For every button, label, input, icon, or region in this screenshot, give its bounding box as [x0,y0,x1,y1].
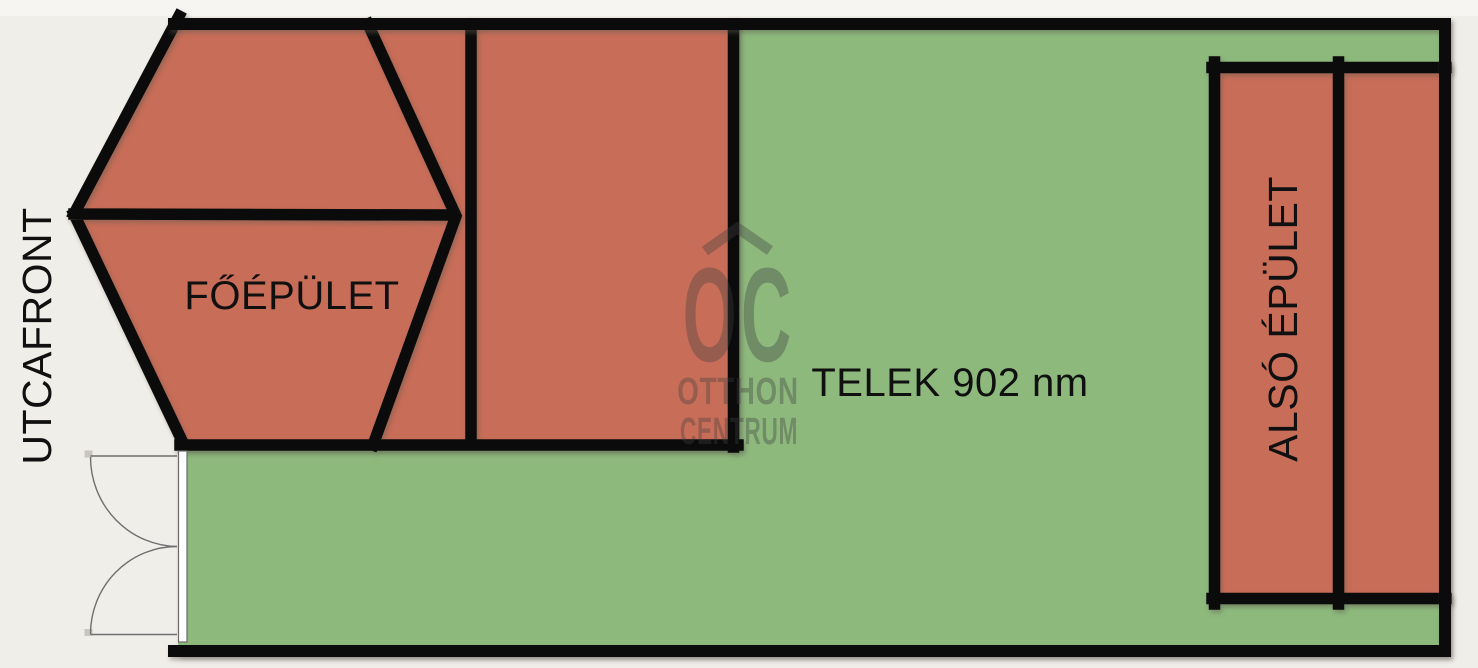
main-building [74,16,739,450]
floor-plan-screenshot: OC OTTHON CENTRUM UTCAFRONT FŐÉPÜLET TEL… [0,0,1478,668]
lower-building-footprint [1212,64,1448,601]
watermark-brand-line2: CENTRUM [680,410,798,452]
street-front-label: UTCAFRONT [14,207,60,464]
lower-building [1212,62,1448,604]
main-building-footprint [74,19,739,450]
door-frame [179,451,188,642]
watermark-logo-text: OC [683,239,796,390]
lower-building-label: ALSÓ ÉPÜLET [1260,176,1306,462]
plot-label: TELEK 902 nm [811,361,1088,405]
main-building-label: FŐÉPÜLET [184,273,399,318]
site-plan-drawing: OC OTTHON CENTRUM UTCAFRONT FŐÉPÜLET TEL… [0,0,1478,668]
watermark-brand-line1: OTTHON [677,371,798,413]
top-strip [0,0,1478,16]
watermark: OC OTTHON CENTRUM [677,228,798,452]
